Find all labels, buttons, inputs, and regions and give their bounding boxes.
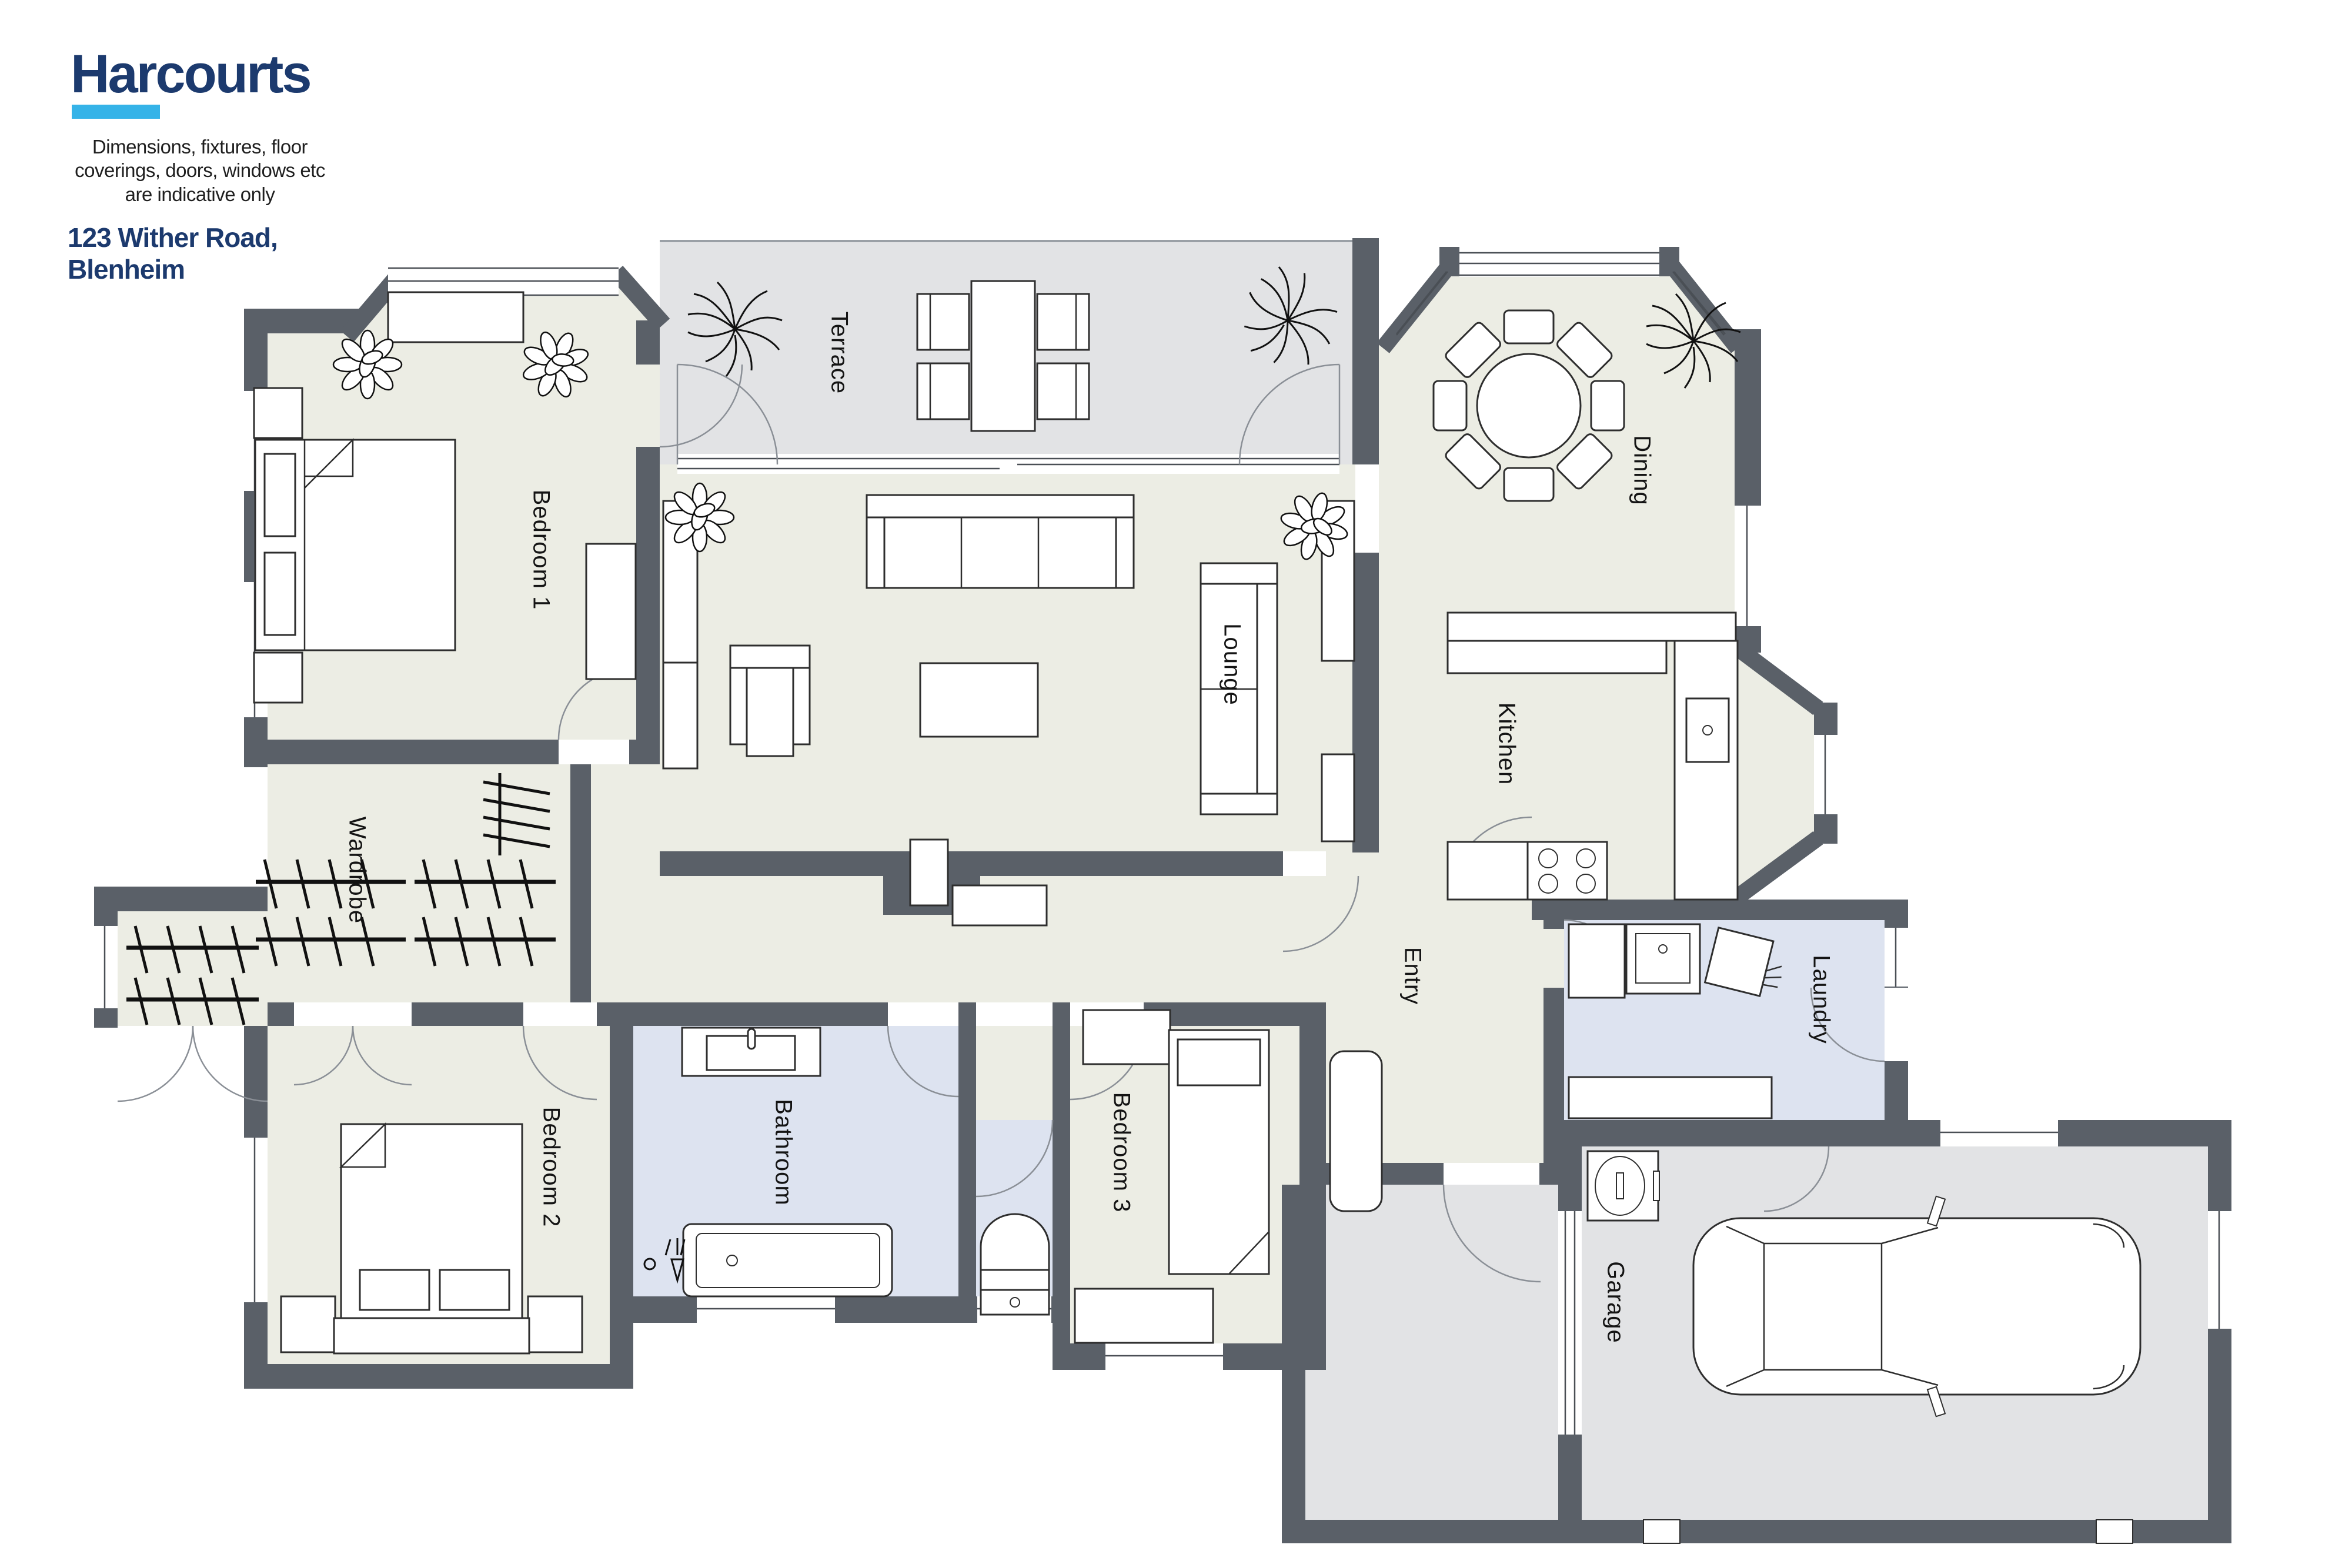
garage-window-top [1940,1120,2058,1146]
garage-label: Garage [1602,1261,1628,1343]
bay-window-bench [388,292,523,342]
bedroom1-plant-left [333,330,402,399]
bedroom1-pillow-1 [265,454,295,536]
laundry-label: Laundry [1808,955,1834,1044]
laundry-window [1885,928,1908,987]
stove [1528,842,1607,900]
disclaimer-line-3: are indicative only [35,183,365,206]
floorplan-page: Harcourts Dimensions, fixtures, floor co… [0,0,2352,1568]
dining-window-right [1735,506,1761,626]
coffee-table [920,663,1038,737]
bedroom2-window [244,1138,268,1302]
bedroom2-pillow-1 [360,1270,429,1310]
entry-cabinet [1330,1051,1382,1211]
washing-machine-slot [1616,1173,1623,1199]
washing-machine-latch [1653,1171,1659,1201]
bedroom1-nightstand-top [254,388,302,438]
wardrobe-annex-window [94,926,118,1008]
laundry-tub-drain [1659,945,1667,953]
kitchen-bay-window [1814,735,1837,814]
porch-garage-glazing [1558,1211,1582,1435]
bedroom2-nightstand-right [528,1296,582,1352]
dining-table [1477,354,1581,457]
bedroom2-pillow-2 [440,1270,509,1310]
sofa2-back [1257,584,1277,794]
porch-floor [1305,1185,1558,1520]
entry-label: Entry [1399,947,1425,1005]
kitchen-counter-2 [1448,641,1666,673]
laundry-cabinet [1569,924,1625,998]
dining-floor [1379,252,1735,673]
bedroom2-headboard [334,1318,529,1353]
garage-door-pier-left [1643,1520,1680,1543]
wardrobe-annex-floor [118,911,268,1026]
disclaimer-line-2: coverings, doors, windows etc [35,159,365,182]
sofa2-arm-bottom [1201,794,1277,814]
sofa2-arm-top [1201,563,1277,584]
kitchen-counter-top [1448,613,1736,641]
bedroom3-dresser [1075,1289,1213,1343]
terrace-chair-4 [1037,363,1089,419]
toilet-fixture [981,1214,1049,1315]
annex-door-left-arc [118,1026,193,1101]
toilet-seat [981,1270,1049,1290]
logo-text: Harcourts [71,47,365,101]
armchair-seat [747,668,793,756]
bedroom3-label: Bedroom 3 [1108,1092,1134,1213]
dining-label: Dining [1629,435,1655,505]
garage-window-right [2208,1211,2231,1329]
kitchen-label: Kitchen [1494,703,1519,785]
lounge-label: Lounge [1219,623,1245,705]
bedroom3-pillow [1178,1039,1260,1085]
hall-sideboard [953,885,1047,925]
kitchen-sink-drain [1703,726,1712,735]
laundry-bench [1569,1077,1772,1118]
sofa-back [867,495,1134,519]
logo-accent-underline [72,105,160,119]
kitchen-counter-bottom [1448,842,1528,900]
sofa-seat [884,517,1116,588]
wardrobe-label: Wardrobe [344,817,370,924]
toilet-lobby-floor [976,1026,1053,1120]
bedroom3-window [1105,1343,1223,1370]
terrace-chair-3 [1037,294,1089,350]
bedroom1-nightstand-bottom [254,653,302,703]
bedroom1-dresser [586,544,636,679]
bathroom-window [697,1296,835,1323]
disclaimer-line-1: Dimensions, fixtures, floor [35,135,365,159]
car-body [1693,1218,2140,1395]
bedroom3-desk [1083,1010,1170,1064]
bathtub-drain [727,1255,737,1266]
bathtub-inner [696,1233,880,1288]
car [1693,1196,2140,1417]
sofa-arm-left [867,517,884,588]
bedroom2-label: Bedroom 2 [538,1107,564,1228]
bedroom1-label: Bedroom 1 [528,490,554,610]
hall-cupboard [910,840,948,905]
lounge-shelf-left-2 [663,663,697,768]
terrace-label: Terrace [826,312,852,394]
armchair-arm-right [793,668,810,744]
lounge-shelf-right-2 [1322,754,1354,841]
terrace-chair-2 [917,363,969,419]
armchair-arm-left [730,668,747,744]
toilet-bowl [981,1214,1049,1270]
bedroom2-nightstand-left [281,1296,335,1352]
terrace-table [971,281,1035,431]
branding-block: Harcourts Dimensions, fixtures, floor co… [35,47,365,285]
lounge-plant-left [666,483,734,551]
laundry-tub-basin [1636,934,1690,983]
dining-furniture [1434,310,1624,501]
terrace-chair-1 [917,294,969,350]
sofa-arm-right [1116,517,1134,588]
kitchen-counter-right [1675,641,1738,900]
property-address: 123 Wither Road, Blenheim [68,222,365,285]
bedroom1-pillow-2 [265,553,295,635]
bathroom-label: Bathroom [770,1099,796,1205]
armchair-back [730,646,810,668]
garage-door-pier-right [2096,1520,2133,1543]
vanity-tap [748,1029,755,1049]
toilet-button [1010,1298,1020,1307]
